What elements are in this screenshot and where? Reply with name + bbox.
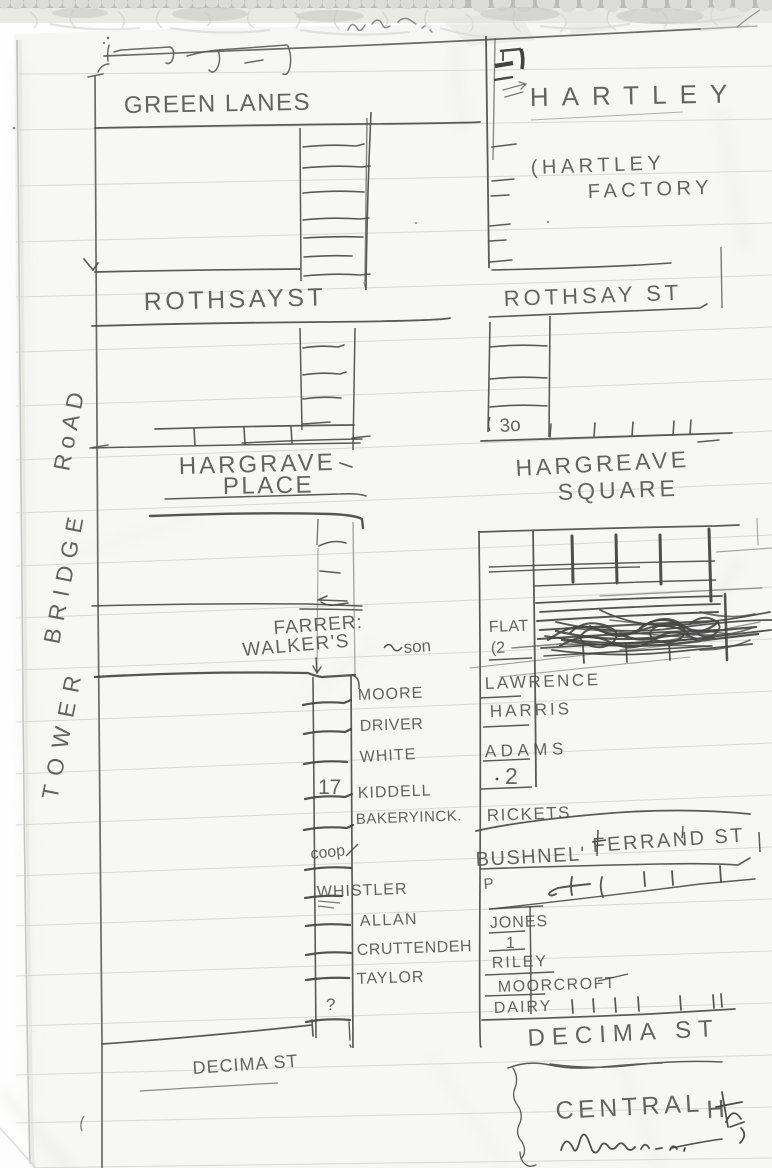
svg-text:ADAMS: ADAMS [484,739,568,761]
svg-text:P: P [483,875,494,893]
svg-text:2: 2 [505,763,518,789]
svg-text:FACTORY: FACTORY [587,177,713,203]
svg-text:17: 17 [318,776,341,799]
svg-text:3o: 3o [499,415,522,437]
svg-text:HARTLEY: HARTLEY [530,78,741,112]
svg-text:ROTHSAYST: ROTHSAYST [143,283,326,316]
svg-text:?: ? [326,995,335,1014]
svg-text:(2: (2 [491,640,506,657]
svg-text:WHITE: WHITE [359,746,416,766]
svg-text:SQUARE: SQUARE [557,475,679,505]
svg-text:MOORE: MOORE [358,685,424,704]
svg-text:coop: coop [310,842,346,863]
svg-text:JONES: JONES [490,913,549,932]
svg-text:GREEN LANES: GREEN LANES [124,89,312,119]
svg-text:HARRIS: HARRIS [489,699,572,721]
svg-text:WHISTLER: WHISTLER [317,881,408,901]
svg-text:KIDDELL: KIDDELL [358,782,432,802]
svg-text:TAYLOR: TAYLOR [357,969,425,988]
svg-text:son: son [403,636,432,657]
svg-text:FLAT: FLAT [489,618,530,636]
svg-text:DAIRY: DAIRY [494,998,553,1017]
svg-text:(HARTLEY: (HARTLEY [530,152,665,179]
svg-text:DRIVER: DRIVER [360,716,424,735]
svg-text:ALLAN: ALLAN [360,911,419,930]
svg-text:RILEY: RILEY [492,953,549,972]
svg-text:LAWRENCE: LAWRENCE [484,670,600,693]
